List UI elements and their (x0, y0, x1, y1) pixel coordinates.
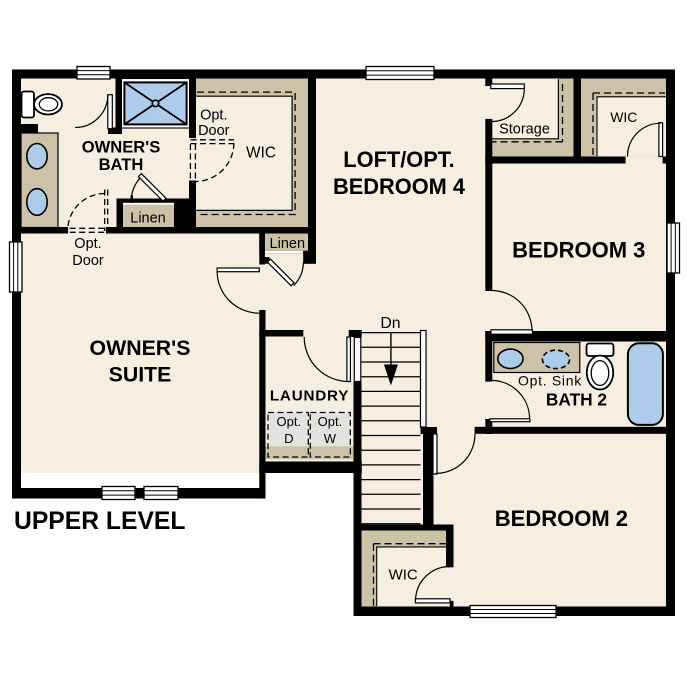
svg-text:Opt.: Opt. (200, 108, 227, 124)
svg-text:Linen: Linen (130, 210, 165, 226)
svg-text:OWNER'S: OWNER'S (90, 336, 191, 360)
svg-text:WIC: WIC (610, 109, 637, 125)
svg-text:BEDROOM 3: BEDROOM 3 (512, 238, 645, 263)
svg-text:Opt.: Opt. (277, 414, 302, 429)
svg-text:Dn: Dn (380, 315, 400, 332)
svg-text:UPPER LEVEL: UPPER LEVEL (14, 508, 185, 535)
svg-text:BATH 2: BATH 2 (546, 389, 607, 409)
svg-text:W: W (324, 431, 337, 446)
svg-text:LAUNDRY: LAUNDRY (270, 388, 349, 405)
svg-text:BEDROOM 4: BEDROOM 4 (333, 174, 465, 199)
svg-text:OWNER'S: OWNER'S (82, 137, 161, 156)
svg-text:LOFT/OPT.: LOFT/OPT. (343, 147, 454, 172)
svg-text:Opt.: Opt. (318, 414, 343, 429)
svg-text:Door: Door (198, 123, 230, 139)
svg-text:SUITE: SUITE (109, 363, 172, 387)
svg-text:WIC: WIC (389, 566, 418, 583)
svg-text:Opt. Sink: Opt. Sink (518, 373, 582, 389)
svg-text:Door: Door (72, 253, 104, 269)
svg-text:WIC: WIC (246, 145, 276, 162)
svg-text:Linen: Linen (270, 236, 305, 252)
svg-text:BEDROOM 2: BEDROOM 2 (495, 506, 628, 531)
svg-text:Opt.: Opt. (74, 236, 101, 252)
svg-text:D: D (284, 431, 293, 446)
svg-text:BATH: BATH (99, 155, 144, 174)
svg-text:Storage: Storage (499, 121, 550, 137)
